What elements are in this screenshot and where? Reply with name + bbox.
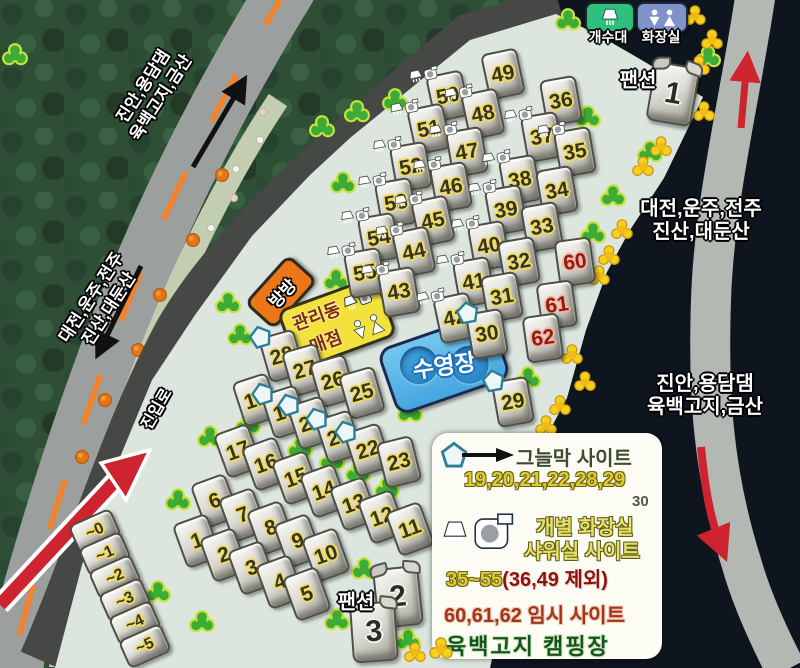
front-flowers	[398, 628, 468, 668]
road-label-right-lower: 진안,용담댐 육백고지,금산	[647, 373, 763, 419]
legend-shade-sites: 19,20,21,22,28,29	[464, 469, 625, 492]
mini-sink-toilet-icon	[407, 65, 439, 85]
site-number: 36	[548, 89, 575, 114]
site-number: 23	[385, 449, 413, 475]
shade-pentagon-icon	[454, 299, 482, 327]
legend-arrow-icon	[462, 447, 514, 463]
mini-sink-toilet-icon	[388, 98, 420, 118]
site-number: 49	[489, 61, 516, 86]
male-person-icon	[647, 9, 662, 27]
road-label-line: 대전,운주,전주	[640, 198, 762, 221]
site-number: 44	[400, 239, 427, 264]
site-number: 34	[544, 179, 571, 204]
mini-sink-toilet-icon	[371, 136, 403, 155]
restroom-label: 화장실	[642, 27, 681, 47]
site-number: 10	[311, 541, 340, 569]
female-person-icon	[662, 9, 677, 27]
mini-sink-toilet-icon	[502, 106, 534, 125]
legend-wc-sites: 35~55	[446, 569, 502, 591]
site-number: 60	[562, 250, 588, 274]
site-tile-30: 30	[465, 308, 510, 361]
site-number: 31	[489, 285, 516, 310]
mini-sink-toilet-icon	[434, 251, 466, 270]
road-label-line: 진안,용담댐	[647, 373, 763, 396]
legend-sink-icon	[442, 513, 468, 555]
site-number: 25	[348, 380, 376, 407]
sink-icon	[601, 7, 619, 28]
site-number: 3	[365, 616, 384, 647]
mini-sink-toilet-icon	[339, 207, 371, 226]
site-tile-43: 43	[377, 266, 422, 319]
road-label-line: 육백고지,금산	[647, 396, 763, 419]
road-label-line: 진산,대둔산	[640, 221, 762, 244]
legend-temp-sites: 60,61,62 임시 사이트	[444, 599, 625, 628]
legend-box: 그늘막 사이트 19,20,21,22,28,29 30 개별 화장실 샤워실 …	[432, 433, 662, 659]
legend-shade-label: 그늘막 사이트	[516, 442, 632, 471]
legend-wc-label-line2: 샤워실 사이트	[524, 535, 640, 564]
site-tile-29: 29	[491, 376, 536, 429]
pension-label-2: 팬션	[338, 586, 375, 615]
site-number: 35	[562, 140, 589, 165]
mini-sink-toilet-icon	[449, 215, 481, 234]
site-number: 47	[454, 140, 481, 165]
site-number: 48	[469, 101, 496, 126]
shade-pentagon-icon	[480, 367, 508, 395]
site-number: 43	[386, 280, 413, 305]
mini-sink-toilet-icon	[325, 242, 357, 261]
site-number: 62	[530, 326, 556, 350]
mini-sink-toilet-icon	[356, 172, 388, 191]
sink-label: 개수대	[589, 27, 628, 47]
site-number: 33	[529, 215, 556, 240]
site-number: 39	[493, 198, 520, 223]
site-tile-62: 62	[521, 312, 564, 364]
road-label-right-upper: 대전,운주,전주 진산,대둔산	[640, 198, 762, 244]
legend-wc-excluded: (36,49 제외)	[502, 569, 608, 591]
site-number: 29	[500, 390, 527, 415]
site-tile-11: 11	[385, 501, 436, 558]
site-number: 30	[474, 322, 501, 347]
legend-shade-extra: 30	[632, 493, 649, 510]
site-number: 1	[662, 78, 684, 110]
site-number: ~5	[133, 635, 156, 657]
site-number: 11	[396, 515, 424, 542]
mini-sink-toilet-icon	[466, 179, 498, 198]
pension-label-1: 팬션	[620, 64, 657, 93]
site-number: 5	[298, 582, 316, 606]
legend-toilet-icon	[472, 511, 514, 553]
mini-sink-toilet-icon	[414, 287, 446, 307]
site-tile-23: 23	[375, 435, 422, 490]
campground-map: 방방 관리동 매점 수영장 49504836514737355246383453…	[0, 0, 800, 668]
legend-campground-name: 육백고지 캠핑장	[446, 629, 610, 661]
